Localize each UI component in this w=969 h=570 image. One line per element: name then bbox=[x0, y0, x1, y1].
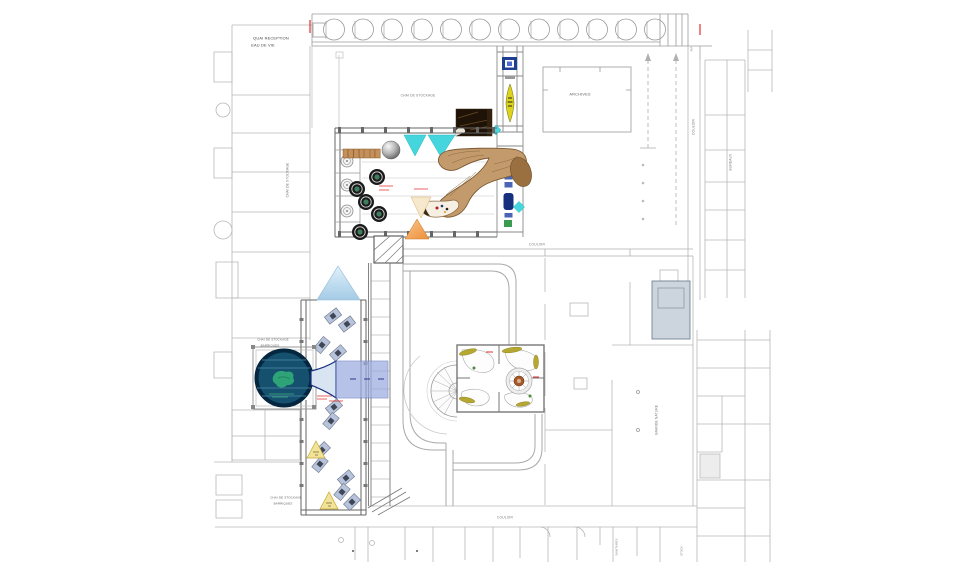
yellow-lens-exhibit bbox=[506, 84, 514, 122]
label-barrel-hall-2: BARRIQUES bbox=[274, 503, 293, 506]
label-pool-room-2: BARRIQUES bbox=[261, 345, 280, 348]
label-quai-reception-2: EAU DE VIE bbox=[251, 44, 275, 48]
entry-tower bbox=[491, 46, 525, 237]
red-annotation bbox=[379, 186, 428, 190]
dark-mural-exhibit bbox=[456, 109, 492, 136]
upper-storage-room bbox=[312, 46, 343, 128]
label-couloir-bottom: COULOIR bbox=[497, 516, 513, 519]
foudre-barrel-row bbox=[324, 19, 666, 40]
label-bureaux: BUREAUX bbox=[729, 154, 732, 171]
entrance-blue-panel bbox=[502, 57, 517, 70]
green-marker bbox=[504, 220, 512, 227]
bottom-right-wing bbox=[697, 330, 770, 562]
round-pool bbox=[257, 351, 312, 406]
tower-mark bbox=[505, 76, 515, 79]
right-courtyard-rooms bbox=[545, 256, 693, 506]
orange-triangle-exhibit bbox=[405, 219, 429, 239]
floor-plan-canvas: QUAI RECEPTION EAU DE VIE CHAI DE STOCKA… bbox=[0, 0, 969, 570]
bottom-corridor-rooms bbox=[215, 506, 697, 562]
barrel-row bbox=[343, 149, 380, 158]
stair-hatch bbox=[368, 488, 410, 515]
red-annotation bbox=[317, 396, 332, 399]
label-quai-reception-1: QUAI RECEPTION bbox=[253, 37, 289, 41]
sky-triangle-exhibit bbox=[317, 266, 360, 300]
label-grande-nature: GRANDE NATURE bbox=[655, 405, 658, 435]
compass-feature bbox=[506, 368, 532, 394]
axis-arrow bbox=[673, 53, 679, 61]
display-cases bbox=[312, 308, 361, 511]
label-barrel-hall-1: CHAI DE STOCKAGE bbox=[270, 497, 302, 500]
sphere-exhibit bbox=[382, 141, 400, 159]
axis-arrow bbox=[645, 53, 651, 61]
label-ria: RIA bbox=[691, 47, 694, 52]
mid-corridor bbox=[403, 249, 693, 256]
projection-funnel bbox=[311, 361, 388, 401]
label-chai-stockage-wall: CHAI DE STOCKAGE bbox=[286, 163, 289, 198]
label-stock: STOCK bbox=[681, 546, 684, 556]
label-sanitaires: SANITAIRES bbox=[616, 539, 619, 556]
pavilion bbox=[427, 345, 544, 421]
archives-room bbox=[543, 67, 631, 132]
spiral-stair bbox=[427, 361, 457, 421]
label-couloir-right: COULOIR bbox=[692, 119, 695, 135]
floor-plan-drawing bbox=[0, 0, 969, 570]
left-wing-rooms bbox=[214, 25, 312, 518]
equipment-circle bbox=[341, 205, 353, 217]
still-tanks bbox=[349, 169, 387, 240]
axis-lines bbox=[640, 53, 679, 225]
label-pool-room-1: CHAI DE STOCKAGE bbox=[257, 339, 289, 342]
label-chai-stockage-hall: CHAI DE STOCKAGE bbox=[401, 94, 436, 97]
cyan-triangle-exhibit bbox=[404, 135, 426, 156]
label-archives: ARCHIVES bbox=[569, 93, 590, 97]
door-swing bbox=[540, 527, 585, 537]
top-barrel-strip bbox=[312, 14, 712, 60]
label-couloir-upper: COULOIR bbox=[529, 243, 545, 246]
